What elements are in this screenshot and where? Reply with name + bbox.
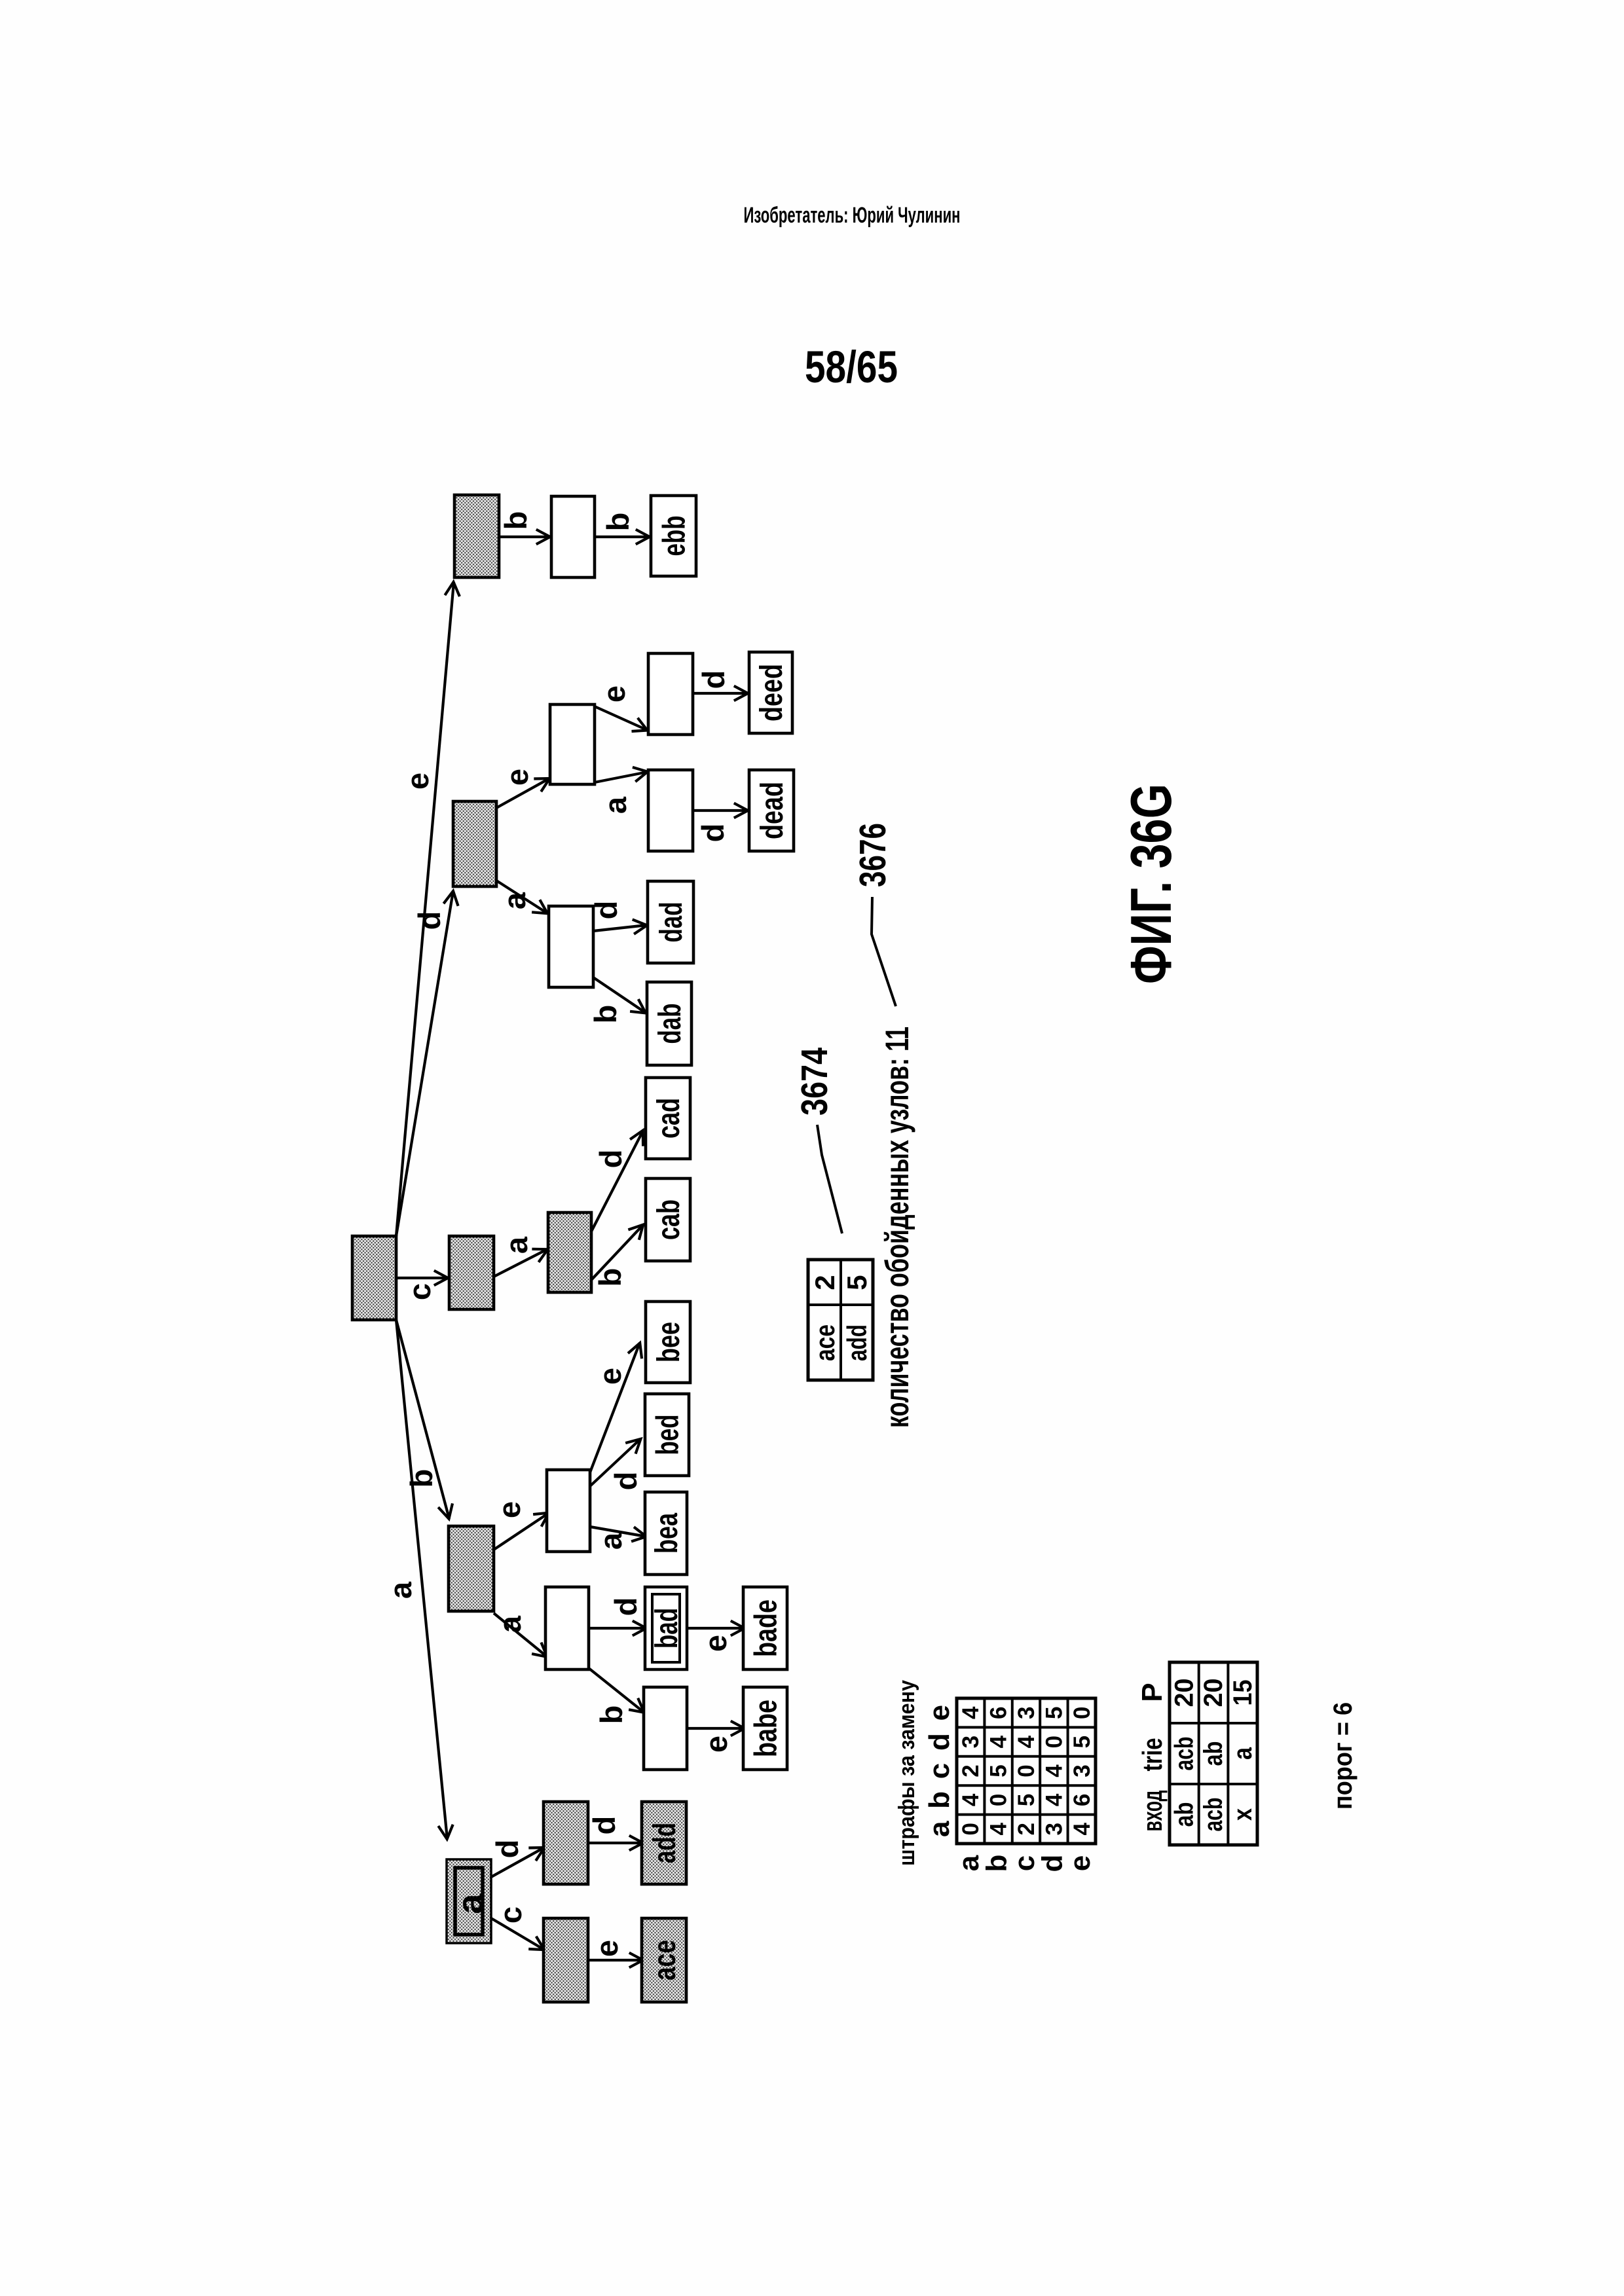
svg-text:b: b <box>593 1268 627 1287</box>
svg-text:acb: acb <box>1199 1798 1228 1832</box>
svg-text:e: e <box>400 773 435 790</box>
svg-text:6: 6 <box>1069 1794 1095 1806</box>
svg-text:bade: bade <box>749 1599 784 1657</box>
svg-text:ФИГ. 36G: ФИГ. 36G <box>1118 784 1183 984</box>
svg-text:d: d <box>608 1597 643 1616</box>
svg-text:ab: ab <box>1170 1802 1198 1827</box>
svg-text:2: 2 <box>958 1764 984 1777</box>
svg-text:d: d <box>593 1150 628 1169</box>
svg-text:Изобретатель: Юрий Чулинин: Изобретатель: Юрий Чулинин <box>744 203 961 228</box>
svg-text:5: 5 <box>1069 1736 1095 1748</box>
svg-text:0: 0 <box>1069 1706 1095 1719</box>
svg-text:4: 4 <box>986 1823 1012 1836</box>
svg-text:bad: bad <box>650 1608 684 1649</box>
svg-text:20: 20 <box>1199 1679 1228 1707</box>
svg-text:0: 0 <box>958 1823 984 1835</box>
svg-text:cad: cad <box>652 1098 686 1139</box>
svg-text:3: 3 <box>1041 1823 1067 1835</box>
svg-text:b: b <box>600 513 635 532</box>
svg-text:dead: dead <box>755 782 790 839</box>
svg-text:e: e <box>698 1635 733 1652</box>
svg-text:4: 4 <box>1041 1793 1067 1806</box>
svg-text:15: 15 <box>1228 1680 1257 1706</box>
svg-text:bee: bee <box>652 1322 686 1362</box>
svg-text:3674: 3674 <box>794 1048 836 1116</box>
svg-text:5: 5 <box>986 1764 1012 1777</box>
svg-text:b: b <box>588 1005 623 1024</box>
svg-text:4: 4 <box>1069 1823 1095 1836</box>
svg-text:acb: acb <box>1170 1737 1198 1771</box>
svg-text:c: c <box>923 1763 955 1779</box>
svg-text:6: 6 <box>986 1706 1012 1719</box>
svg-text:4: 4 <box>1014 1735 1039 1748</box>
svg-text:5: 5 <box>1014 1794 1039 1806</box>
svg-text:20: 20 <box>1170 1679 1198 1707</box>
svg-text:a: a <box>497 892 532 909</box>
svg-text:e: e <box>597 685 631 702</box>
svg-text:a: a <box>1228 1747 1257 1760</box>
svg-text:b: b <box>498 511 533 530</box>
svg-text:P: P <box>1136 1683 1168 1702</box>
svg-text:4: 4 <box>986 1735 1012 1748</box>
svg-text:c: c <box>493 1906 528 1923</box>
svg-text:e: e <box>1064 1855 1096 1871</box>
svg-text:4: 4 <box>1041 1764 1067 1777</box>
svg-text:порог = 6: порог = 6 <box>1329 1702 1357 1810</box>
svg-text:a: a <box>449 1893 490 1914</box>
svg-text:e: e <box>593 1368 627 1385</box>
svg-text:b: b <box>404 1469 439 1488</box>
svg-text:trie: trie <box>1137 1738 1168 1772</box>
svg-text:dab: dab <box>653 1004 688 1044</box>
svg-text:4: 4 <box>958 1706 984 1719</box>
svg-text:add: add <box>841 1324 872 1361</box>
svg-text:bed: bed <box>651 1415 686 1455</box>
svg-text:3676: 3676 <box>852 823 894 887</box>
svg-text:a: a <box>598 796 633 814</box>
svg-text:e: e <box>492 1501 526 1518</box>
svg-text:e: e <box>923 1705 955 1721</box>
svg-text:cab: cab <box>652 1199 686 1240</box>
svg-text:deed: deed <box>754 664 789 721</box>
svg-text:x: x <box>1228 1808 1257 1821</box>
svg-text:0: 0 <box>986 1794 1012 1806</box>
svg-text:e: e <box>589 1940 624 1957</box>
svg-text:2: 2 <box>809 1275 840 1290</box>
svg-text:d: d <box>695 824 730 843</box>
svg-text:штрафы за замену: штрафы за замену <box>895 1680 919 1866</box>
svg-text:e: e <box>699 1736 733 1753</box>
svg-text:a: a <box>499 1236 534 1254</box>
svg-text:3: 3 <box>1069 1764 1095 1777</box>
svg-text:4: 4 <box>958 1793 984 1806</box>
svg-text:d: d <box>696 670 731 689</box>
svg-text:3: 3 <box>1014 1706 1039 1719</box>
svg-text:2: 2 <box>1014 1823 1039 1835</box>
svg-text:5: 5 <box>841 1275 872 1290</box>
svg-text:a: a <box>492 1615 527 1633</box>
svg-text:d: d <box>608 1472 643 1491</box>
svg-text:a: a <box>383 1581 418 1599</box>
svg-text:5: 5 <box>1041 1706 1067 1719</box>
svg-text:e: e <box>500 769 534 786</box>
svg-text:b: b <box>594 1705 629 1724</box>
svg-text:a: a <box>593 1532 628 1550</box>
svg-text:количество обойденных узлов:: количество обойденных узлов: 11 <box>879 1027 915 1428</box>
svg-text:вход: вход <box>1137 1791 1168 1832</box>
svg-text:add: add <box>648 1823 682 1863</box>
svg-text:ebb: ebb <box>657 516 692 556</box>
svg-text:ace: ace <box>809 1324 840 1361</box>
svg-text:d: d <box>587 1816 621 1835</box>
svg-text:ace: ace <box>648 1940 682 1980</box>
svg-text:3: 3 <box>958 1736 984 1748</box>
svg-text:c: c <box>402 1283 437 1300</box>
svg-text:babe: babe <box>749 1700 784 1757</box>
svg-text:0: 0 <box>1041 1736 1067 1748</box>
svg-text:bea: bea <box>650 1513 684 1554</box>
svg-text:ab: ab <box>1199 1741 1228 1766</box>
svg-text:d: d <box>412 911 447 930</box>
svg-text:b: b <box>923 1791 955 1809</box>
svg-text:58/65: 58/65 <box>805 342 898 392</box>
svg-text:0: 0 <box>1014 1764 1039 1777</box>
svg-text:d: d <box>490 1840 525 1859</box>
svg-text:dad: dad <box>654 902 689 943</box>
svg-text:d: d <box>923 1733 955 1751</box>
svg-text:a: a <box>923 1821 955 1837</box>
